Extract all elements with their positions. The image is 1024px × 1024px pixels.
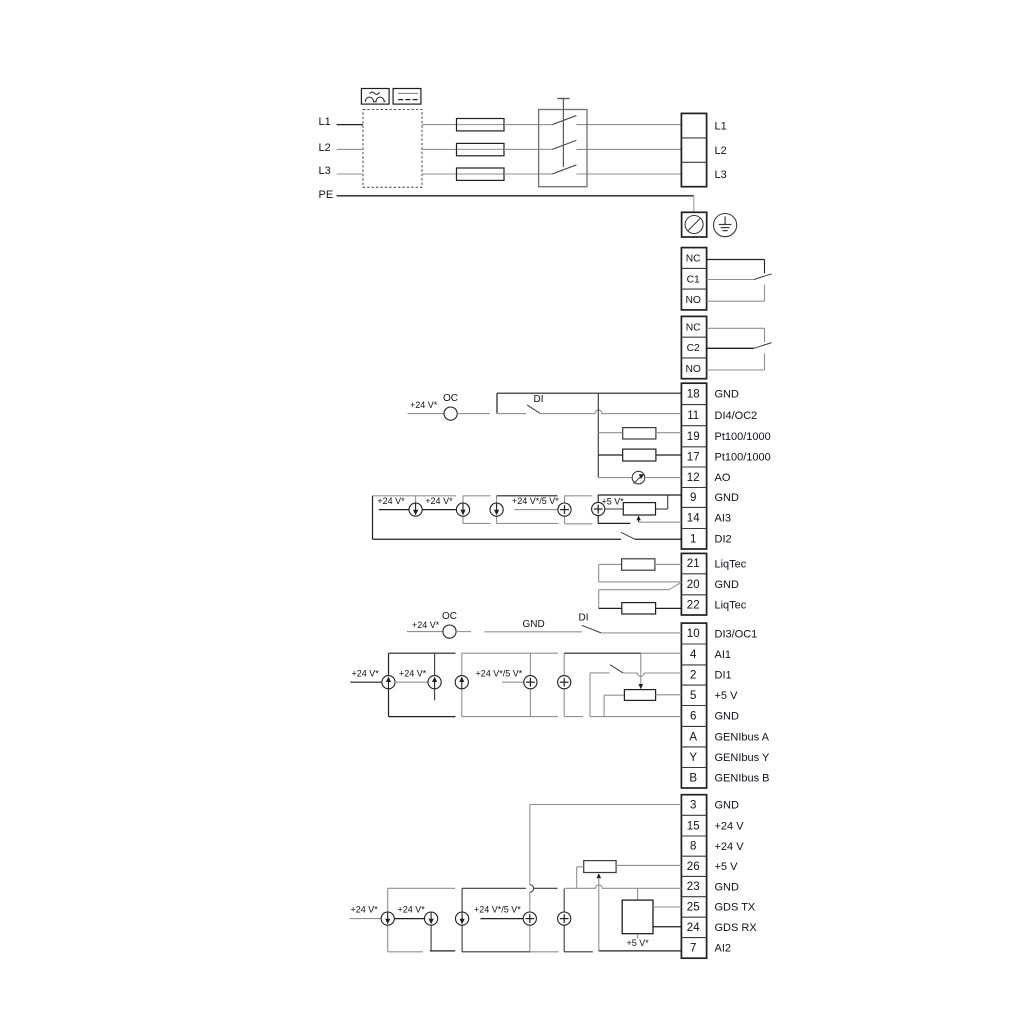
svg-text:L1: L1 (319, 116, 331, 128)
svg-text:24: 24 (687, 922, 700, 934)
svg-text:Pt100/1000: Pt100/1000 (715, 452, 771, 464)
svg-text:L1: L1 (715, 120, 727, 132)
svg-text:+24 V*: +24 V* (425, 496, 453, 506)
svg-text:DI4/OC2: DI4/OC2 (715, 410, 758, 422)
svg-text:10: 10 (687, 628, 700, 640)
svg-text:GND: GND (715, 881, 740, 893)
svg-text:GENIbus A: GENIbus A (715, 731, 770, 743)
svg-text:25: 25 (687, 902, 700, 914)
svg-text:+24 V*: +24 V* (352, 668, 380, 678)
svg-text:L3: L3 (715, 169, 727, 181)
svg-text:19: 19 (687, 431, 700, 443)
svg-text:AO: AO (715, 472, 731, 484)
svg-text:B: B (689, 772, 697, 784)
svg-text:5: 5 (690, 690, 696, 702)
svg-text:GND: GND (715, 389, 740, 401)
svg-text:4: 4 (690, 649, 697, 661)
svg-text:AI2: AI2 (715, 943, 732, 955)
svg-text:1: 1 (690, 533, 696, 545)
svg-text:9: 9 (690, 492, 696, 504)
svg-text:7: 7 (690, 943, 696, 955)
svg-text:17: 17 (687, 452, 700, 464)
svg-text:Pt100/1000: Pt100/1000 (715, 431, 771, 443)
svg-text:Y: Y (689, 752, 697, 764)
svg-text:GND: GND (715, 579, 740, 591)
svg-text:+24 V*/5 V*: +24 V*/5 V* (512, 496, 559, 506)
svg-text:20: 20 (687, 579, 700, 591)
svg-text:+24 V: +24 V (715, 841, 745, 853)
svg-text:C1: C1 (687, 274, 700, 285)
svg-text:23: 23 (687, 881, 700, 893)
svg-text:+5 V: +5 V (715, 690, 739, 702)
svg-text:AI3: AI3 (715, 513, 732, 525)
svg-text:A: A (689, 731, 697, 743)
svg-text:22: 22 (687, 600, 700, 612)
svg-text:L2: L2 (319, 142, 331, 154)
svg-text:NO: NO (685, 295, 700, 306)
svg-text:18: 18 (687, 389, 700, 401)
svg-text:DI1: DI1 (715, 670, 732, 682)
svg-text:GND: GND (523, 619, 545, 630)
svg-text:DI2: DI2 (715, 533, 732, 545)
svg-text:L2: L2 (715, 145, 727, 157)
svg-text:OC: OC (443, 393, 458, 404)
svg-text:LiqTec: LiqTec (715, 600, 747, 612)
svg-text:DI: DI (534, 394, 544, 405)
svg-text:+24 V*: +24 V* (399, 668, 427, 678)
svg-text:15: 15 (687, 820, 700, 832)
svg-text:OC: OC (442, 611, 457, 622)
svg-text:+24 V*: +24 V* (351, 905, 379, 915)
svg-text:+5 V*: +5 V* (602, 497, 625, 507)
svg-text:12: 12 (687, 472, 700, 484)
svg-text:NC: NC (686, 322, 701, 333)
svg-text:21: 21 (687, 558, 700, 570)
svg-text:GND: GND (715, 711, 740, 723)
svg-text:AI1: AI1 (715, 649, 732, 661)
svg-text:+5 V: +5 V (715, 861, 739, 873)
svg-text:LiqTec: LiqTec (715, 558, 747, 570)
svg-text:GENIbus Y: GENIbus Y (715, 752, 770, 764)
svg-text:GND: GND (715, 800, 740, 812)
svg-text:2: 2 (690, 670, 696, 682)
svg-text:+24 V*: +24 V* (412, 620, 440, 630)
svg-text:GENIbus B: GENIbus B (715, 772, 770, 784)
svg-text:PE: PE (319, 189, 334, 201)
svg-text:L3: L3 (319, 165, 331, 177)
svg-text:DI: DI (579, 612, 589, 623)
svg-text:3: 3 (690, 800, 696, 812)
svg-text:8: 8 (690, 841, 696, 853)
svg-text:+5 V*: +5 V* (627, 938, 650, 948)
svg-text:+24 V*: +24 V* (398, 905, 426, 915)
svg-text:GDS RX: GDS RX (715, 922, 758, 934)
svg-text:11: 11 (687, 410, 699, 422)
svg-text:26: 26 (687, 861, 700, 873)
svg-text:GND: GND (715, 492, 740, 504)
svg-text:+24 V*: +24 V* (410, 400, 438, 410)
svg-text:+24 V*/5 V*: +24 V*/5 V* (474, 905, 521, 915)
svg-text:+24 V*/5 V*: +24 V*/5 V* (476, 668, 523, 678)
svg-text:GDS TX: GDS TX (715, 902, 756, 914)
svg-text:NC: NC (686, 254, 701, 265)
svg-text:14: 14 (687, 513, 700, 525)
svg-text:6: 6 (690, 711, 696, 723)
svg-text:NO: NO (685, 364, 700, 375)
svg-text:DI3/OC1: DI3/OC1 (715, 628, 758, 640)
svg-text:+24 V*: +24 V* (377, 496, 405, 506)
svg-text:C2: C2 (687, 343, 700, 354)
svg-text:+24 V: +24 V (715, 820, 745, 832)
